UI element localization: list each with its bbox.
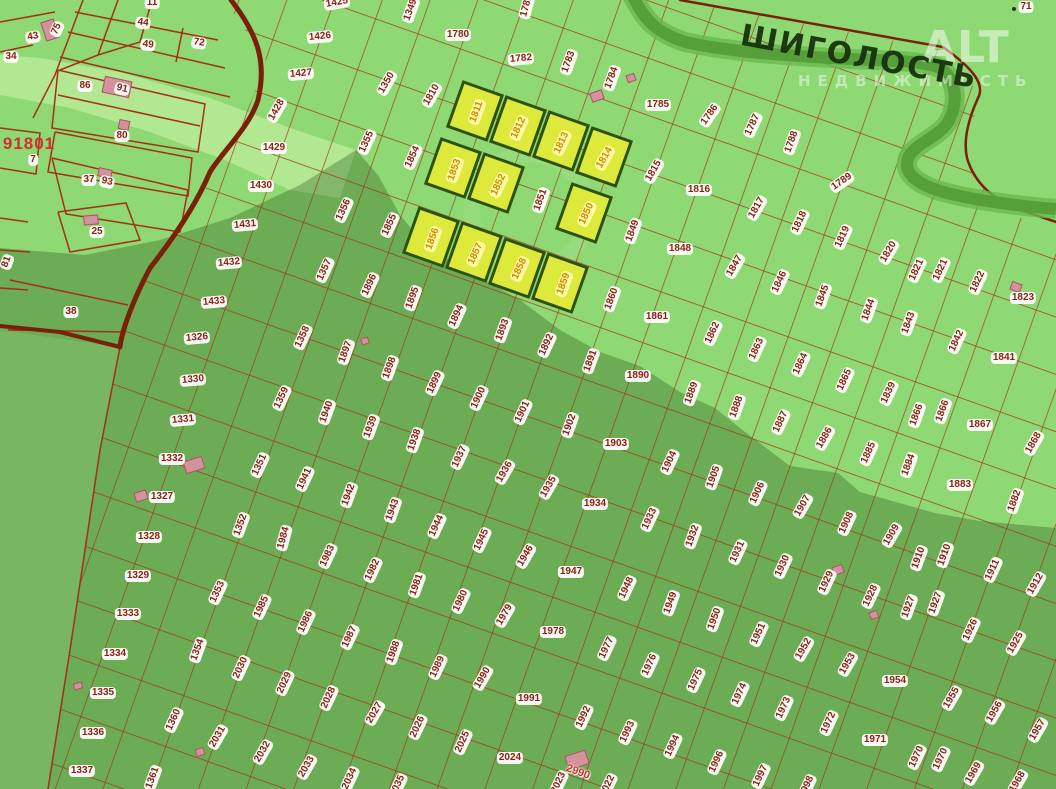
parcel-label: 1431 <box>231 218 258 232</box>
parcel-label: 80 <box>114 130 129 142</box>
parcel-label: 1883 <box>947 479 973 491</box>
parcel-label: 1848 <box>667 243 693 255</box>
parcel-label: 34 <box>3 51 18 63</box>
parcel-label: 1334 <box>102 648 128 660</box>
parcel-label: 1867 <box>967 419 993 431</box>
parcel-label: 1337 <box>69 765 95 777</box>
building-footprint <box>83 214 99 225</box>
parcel-label: 1934 <box>582 498 608 510</box>
parcel-label: 1816 <box>686 184 712 196</box>
parcel-label: 1427 <box>287 67 314 81</box>
parcel-label: 1861 <box>644 311 670 323</box>
parcel-label: 1903 <box>603 438 629 450</box>
parcel-label: 37 <box>81 174 96 186</box>
parcel-label: 1426 <box>306 30 333 44</box>
parcel-label: 1328 <box>136 531 162 543</box>
parcel-label: 1782 <box>507 52 534 66</box>
parcel-label: 1785 <box>645 99 671 111</box>
parcel-label: 86 <box>77 80 92 92</box>
poi-dot <box>1012 7 1016 11</box>
parcel-label: 1823 <box>1010 292 1036 304</box>
parcel-label: 38 <box>63 306 78 318</box>
parcel-label: 1432 <box>215 256 242 270</box>
parcel-label: 1890 <box>625 370 651 382</box>
parcel-label: 1947 <box>558 566 584 578</box>
parcel-label: 1429 <box>261 142 287 154</box>
parcel-label: 49 <box>140 38 157 52</box>
parcel-label: 1335 <box>90 687 116 699</box>
parcel-label: 1971 <box>862 734 888 746</box>
parcel-label: 44 <box>135 16 152 30</box>
parcel-label: 1331 <box>169 413 196 427</box>
parcel-label: 1333 <box>115 608 141 620</box>
parcel-label: 1991 <box>516 693 542 705</box>
parcel-label: 91801 <box>1 138 57 150</box>
parcel-label: 7 <box>28 154 38 166</box>
parcel-label: 1336 <box>80 727 106 739</box>
parcel-label: 2024 <box>497 752 523 764</box>
parcel-label: 25 <box>89 226 104 238</box>
parcel-label: 1978 <box>540 626 566 638</box>
parcel-label: 72 <box>191 36 208 50</box>
parcel-label: 1329 <box>125 570 151 582</box>
parcel-label: 1327 <box>149 491 175 503</box>
parcel-label: 1841 <box>991 352 1017 364</box>
parcel-label: 1433 <box>200 295 227 309</box>
parcel-label: 1330 <box>179 373 206 387</box>
parcel-label: 11 <box>145 0 160 9</box>
parcel-label: 1954 <box>882 675 908 687</box>
parcel-label: 1430 <box>248 180 274 192</box>
parcel-label: 1332 <box>159 453 185 465</box>
parcel-label: 1326 <box>183 331 210 345</box>
cadastral-map-canvas[interactable]: 1144497243753486918073793258138918017114… <box>0 0 1056 789</box>
parcel-label: 71 <box>1018 1 1033 13</box>
parcel-label: 1780 <box>445 29 471 41</box>
